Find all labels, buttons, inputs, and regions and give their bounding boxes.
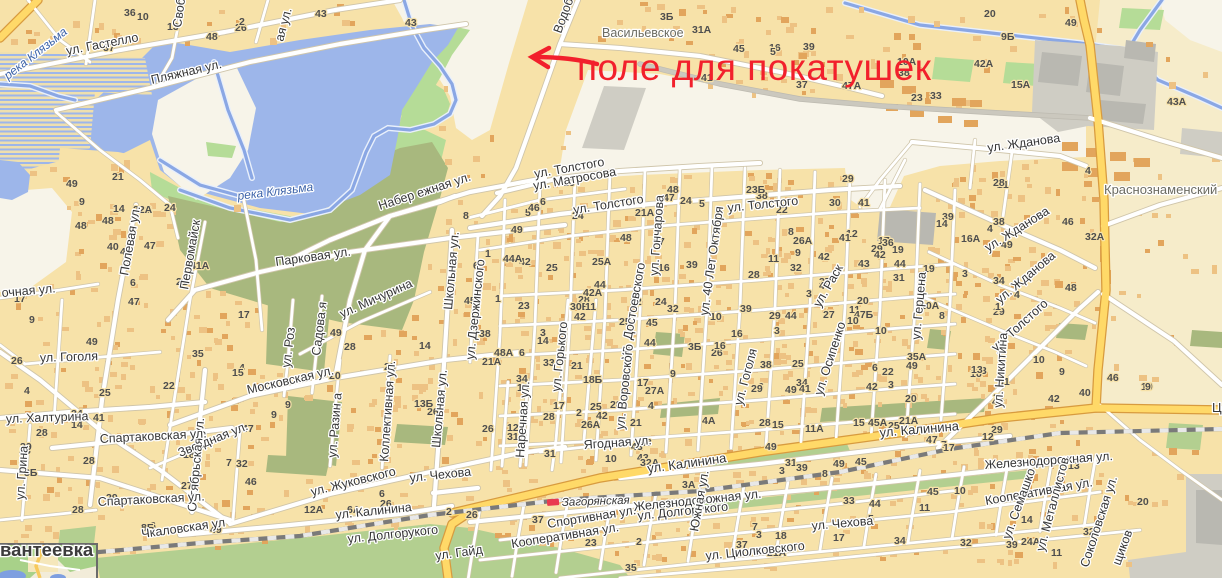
svg-text:1: 1 — [485, 248, 491, 260]
svg-text:27: 27 — [823, 309, 835, 321]
svg-text:32: 32 — [790, 262, 802, 274]
svg-text:48: 48 — [620, 232, 632, 244]
svg-text:вантеевка: вантеевка — [0, 539, 94, 560]
svg-text:31: 31 — [893, 272, 905, 284]
svg-text:41: 41 — [799, 383, 811, 395]
svg-text:Васильевское: Васильевское — [602, 26, 684, 40]
svg-text:49: 49 — [330, 327, 342, 339]
svg-text:4: 4 — [648, 400, 654, 412]
svg-text:4А: 4А — [702, 415, 716, 427]
svg-text:47: 47 — [144, 240, 156, 252]
svg-text:36: 36 — [124, 7, 136, 19]
svg-text:13Б: 13Б — [414, 398, 434, 410]
svg-text:28: 28 — [748, 269, 760, 281]
svg-text:33: 33 — [843, 495, 855, 507]
svg-text:9Б: 9Б — [1001, 31, 1015, 43]
svg-text:11: 11 — [1051, 547, 1062, 559]
svg-text:32: 32 — [667, 303, 679, 315]
svg-text:49: 49 — [86, 336, 98, 348]
svg-text:35А: 35А — [907, 351, 927, 363]
svg-text:15: 15 — [772, 419, 784, 431]
svg-text:16: 16 — [731, 328, 743, 340]
svg-text:49: 49 — [765, 441, 777, 453]
svg-text:11: 11 — [768, 253, 779, 265]
svg-text:13: 13 — [971, 364, 983, 376]
svg-text:9: 9 — [670, 368, 676, 380]
svg-text:37: 37 — [532, 514, 544, 526]
svg-text:6: 6 — [872, 362, 878, 374]
svg-text:Це: Це — [1212, 400, 1222, 415]
svg-text:42А: 42А — [583, 287, 603, 299]
svg-text:17: 17 — [943, 442, 955, 454]
svg-text:20: 20 — [857, 295, 869, 307]
svg-text:10: 10 — [605, 453, 617, 465]
svg-text:48: 48 — [206, 31, 218, 43]
svg-text:ул. Халтурина: ул. Халтурина — [6, 409, 89, 426]
svg-text:28: 28 — [344, 341, 356, 353]
svg-text:6: 6 — [519, 347, 525, 359]
svg-text:6: 6 — [540, 196, 546, 208]
svg-text:43: 43 — [405, 17, 417, 29]
svg-text:11: 11 — [919, 502, 930, 514]
svg-text:8: 8 — [822, 468, 828, 480]
svg-text:10: 10 — [1033, 354, 1045, 366]
svg-text:14: 14 — [113, 203, 125, 215]
svg-text:32: 32 — [236, 458, 248, 470]
svg-text:23: 23 — [518, 300, 530, 312]
svg-text:28: 28 — [543, 411, 555, 423]
svg-text:35: 35 — [625, 562, 637, 574]
svg-text:44А: 44А — [503, 253, 523, 265]
svg-text:29: 29 — [842, 173, 854, 185]
svg-text:15: 15 — [232, 367, 244, 379]
svg-text:46: 46 — [1062, 216, 1074, 228]
svg-text:48: 48 — [75, 220, 87, 232]
svg-text:11: 11 — [585, 301, 596, 313]
svg-text:20: 20 — [984, 8, 996, 20]
svg-text:21: 21 — [112, 171, 124, 183]
svg-text:17: 17 — [238, 309, 250, 321]
svg-text:49: 49 — [1065, 17, 1077, 29]
svg-text:9: 9 — [79, 196, 85, 208]
svg-text:16: 16 — [714, 340, 726, 352]
svg-text:28: 28 — [993, 177, 1005, 189]
svg-text:44: 44 — [869, 498, 881, 510]
svg-text:42: 42 — [874, 249, 886, 261]
svg-text:26А: 26А — [793, 235, 813, 247]
svg-text:46: 46 — [245, 476, 257, 488]
svg-text:24: 24 — [164, 202, 176, 214]
svg-text:17: 17 — [637, 377, 649, 389]
svg-text:12: 12 — [982, 431, 994, 443]
svg-text:20: 20 — [1137, 496, 1149, 508]
svg-text:28: 28 — [83, 455, 95, 467]
svg-text:10: 10 — [710, 311, 722, 323]
svg-text:15: 15 — [853, 417, 865, 429]
svg-text:9: 9 — [29, 314, 35, 326]
svg-text:2: 2 — [636, 536, 642, 548]
svg-text:3: 3 — [774, 325, 780, 337]
svg-text:9: 9 — [1145, 381, 1151, 393]
svg-text:6: 6 — [379, 488, 385, 500]
svg-text:42: 42 — [1048, 393, 1060, 405]
svg-text:21: 21 — [630, 417, 642, 429]
svg-text:поле для покатушек: поле для покатушек — [577, 47, 932, 88]
svg-text:34: 34 — [993, 275, 1005, 287]
svg-text:16А: 16А — [961, 233, 981, 245]
svg-text:19: 19 — [892, 244, 904, 256]
svg-text:22: 22 — [163, 380, 175, 392]
svg-text:3: 3 — [540, 327, 546, 339]
svg-text:39: 39 — [686, 259, 698, 271]
svg-text:3: 3 — [888, 379, 894, 391]
svg-text:46: 46 — [1107, 372, 1119, 384]
svg-text:49: 49 — [66, 178, 78, 190]
svg-text:3: 3 — [962, 268, 968, 280]
svg-text:8: 8 — [463, 210, 469, 222]
svg-text:48: 48 — [102, 215, 114, 227]
svg-text:45: 45 — [855, 456, 867, 468]
svg-text:46: 46 — [528, 202, 540, 214]
svg-text:28: 28 — [36, 427, 48, 439]
svg-text:Краснознаменский: Краснознаменский — [1104, 182, 1217, 197]
svg-text:34: 34 — [894, 535, 906, 547]
svg-text:10: 10 — [954, 485, 966, 497]
svg-text:25А: 25А — [592, 256, 612, 268]
svg-text:23: 23 — [911, 92, 923, 104]
svg-text:49: 49 — [833, 458, 845, 470]
svg-text:12А: 12А — [304, 504, 324, 516]
svg-text:29: 29 — [751, 383, 763, 395]
svg-text:24: 24 — [680, 195, 692, 207]
svg-text:39: 39 — [740, 303, 752, 315]
svg-text:ул. Гоголя: ул. Гоголя — [40, 349, 99, 365]
svg-text:3: 3 — [779, 465, 785, 477]
svg-text:11А: 11А — [805, 423, 824, 435]
svg-text:42А: 42А — [974, 58, 994, 70]
svg-text:20: 20 — [905, 393, 917, 405]
svg-text:47: 47 — [128, 296, 140, 308]
svg-text:26: 26 — [466, 509, 478, 521]
svg-text:48: 48 — [1065, 282, 1077, 294]
svg-text:14: 14 — [936, 218, 948, 230]
svg-text:41: 41 — [93, 412, 105, 424]
svg-text:17: 17 — [833, 532, 845, 544]
svg-text:25: 25 — [792, 358, 804, 370]
svg-text:41: 41 — [858, 197, 870, 209]
svg-text:43А: 43А — [1167, 96, 1187, 108]
svg-text:45: 45 — [927, 486, 939, 498]
svg-text:26: 26 — [11, 355, 23, 367]
svg-text:31А: 31А — [692, 24, 712, 36]
svg-text:28: 28 — [759, 417, 771, 429]
svg-text:38: 38 — [993, 216, 1005, 228]
svg-text:10: 10 — [847, 315, 859, 327]
svg-text:4: 4 — [24, 385, 30, 397]
svg-text:49: 49 — [511, 224, 523, 236]
svg-text:38: 38 — [479, 328, 491, 340]
svg-text:3: 3 — [806, 288, 812, 300]
svg-text:25: 25 — [99, 387, 111, 399]
svg-text:42: 42 — [596, 410, 608, 422]
svg-text:28: 28 — [72, 504, 84, 516]
svg-text:7: 7 — [226, 457, 232, 469]
svg-text:6: 6 — [130, 277, 136, 289]
svg-text:48А: 48А — [494, 347, 514, 359]
svg-text:10: 10 — [875, 325, 887, 337]
svg-text:8: 8 — [939, 310, 945, 322]
svg-text:10: 10 — [137, 11, 149, 23]
svg-text:41: 41 — [839, 232, 851, 244]
svg-text:3Б: 3Б — [660, 11, 674, 23]
svg-text:1: 1 — [495, 293, 501, 305]
svg-text:44: 44 — [644, 337, 656, 349]
svg-text:3Б: 3Б — [688, 341, 702, 353]
svg-text:9: 9 — [285, 399, 291, 411]
svg-text:9: 9 — [795, 247, 801, 259]
svg-text:40: 40 — [107, 241, 119, 253]
svg-text:2: 2 — [446, 506, 452, 518]
svg-text:42: 42 — [818, 251, 830, 263]
svg-text:9: 9 — [1059, 366, 1065, 378]
svg-text:23Б: 23Б — [746, 184, 766, 196]
svg-text:2: 2 — [239, 16, 245, 28]
svg-text:29: 29 — [769, 310, 781, 322]
svg-text:32А: 32А — [1085, 231, 1105, 243]
svg-text:2: 2 — [576, 407, 582, 419]
svg-text:44: 44 — [785, 310, 797, 322]
svg-text:35: 35 — [192, 348, 204, 360]
svg-text:39: 39 — [796, 462, 808, 474]
svg-text:31: 31 — [544, 448, 556, 460]
svg-text:30: 30 — [829, 197, 841, 209]
svg-text:9: 9 — [271, 409, 277, 421]
svg-text:38: 38 — [760, 359, 772, 371]
svg-text:42: 42 — [866, 381, 878, 393]
svg-text:7: 7 — [752, 521, 758, 533]
svg-text:5: 5 — [699, 198, 705, 210]
svg-text:32: 32 — [960, 537, 972, 549]
svg-text:17: 17 — [553, 400, 565, 412]
svg-text:22: 22 — [882, 366, 894, 378]
svg-text:26: 26 — [482, 423, 494, 435]
svg-text:33: 33 — [930, 90, 942, 102]
svg-text:18Б: 18Б — [583, 374, 603, 386]
svg-text:14: 14 — [1021, 514, 1033, 526]
svg-text:21: 21 — [571, 360, 583, 372]
svg-text:24: 24 — [655, 296, 667, 308]
svg-text:15А: 15А — [1011, 79, 1031, 91]
svg-text:4: 4 — [1085, 165, 1091, 177]
svg-text:45: 45 — [646, 317, 658, 329]
svg-text:44: 44 — [894, 258, 906, 270]
svg-text:14: 14 — [419, 340, 431, 352]
svg-text:Загорянская: Загорянская — [562, 495, 630, 509]
svg-text:40: 40 — [1079, 387, 1091, 399]
svg-text:43: 43 — [315, 8, 327, 20]
svg-text:43: 43 — [858, 258, 870, 270]
svg-text:25: 25 — [546, 262, 558, 274]
